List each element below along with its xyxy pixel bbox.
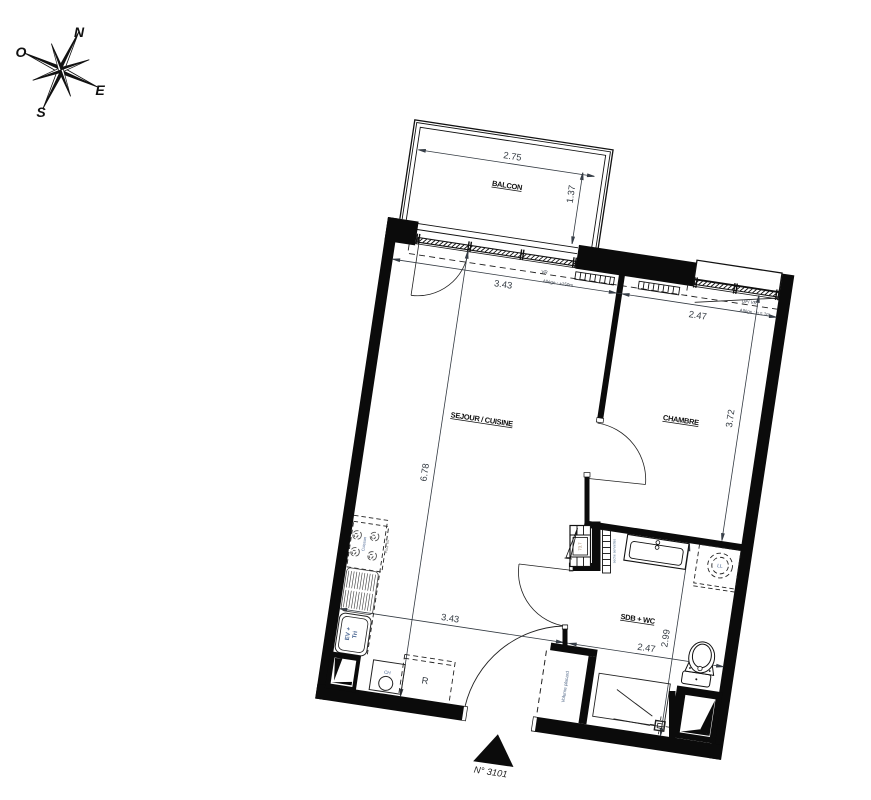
svg-text:Tri: Tri [352, 630, 359, 638]
svg-text:O: O [16, 44, 27, 60]
svg-text:seche serviettes: seche serviettes [613, 538, 617, 563]
svg-text:N: N [74, 24, 85, 40]
svg-text:S: S [36, 104, 46, 120]
svg-text:73.7: 73.7 [578, 542, 583, 551]
svg-text:LL: LL [717, 563, 724, 570]
svg-text:E: E [95, 82, 105, 98]
svg-text:CH: CH [384, 670, 391, 676]
